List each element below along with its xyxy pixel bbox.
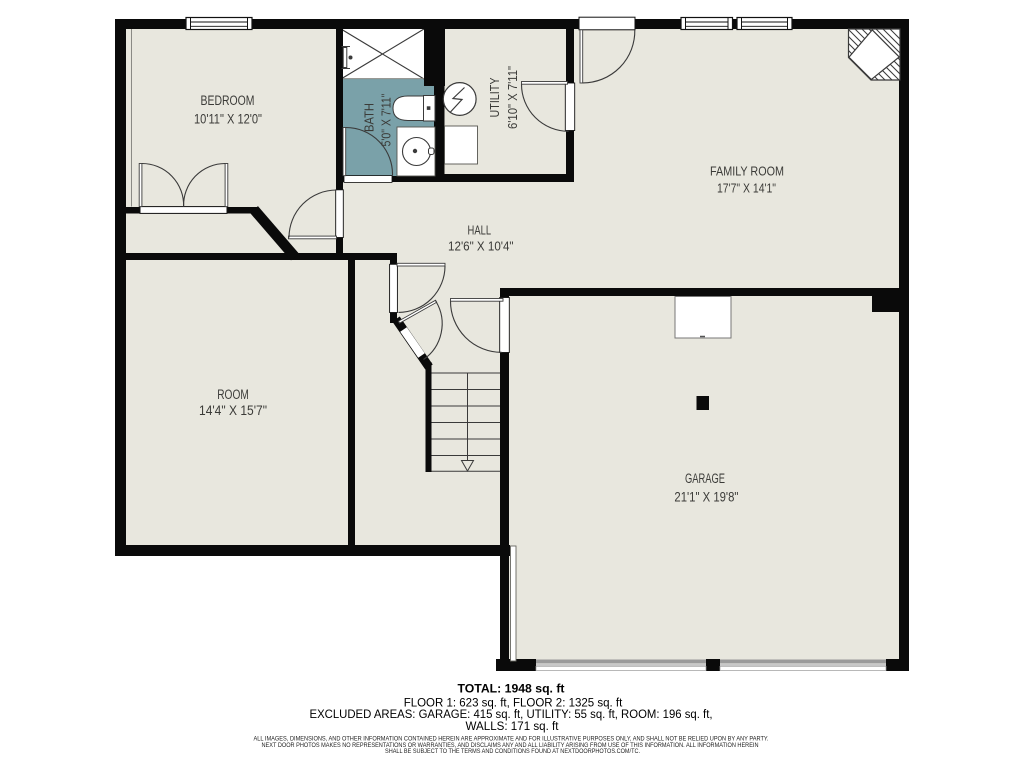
svg-text:HALL: HALL — [468, 223, 492, 238]
svg-text:17'7" X 14'1": 17'7" X 14'1" — [717, 181, 776, 196]
svg-text:TOTAL: 1948 sq. ft: TOTAL: 1948 sq. ft — [458, 681, 565, 695]
svg-text:14'4" X 15'7": 14'4" X 15'7" — [199, 403, 267, 418]
svg-text:BEDROOM: BEDROOM — [201, 93, 255, 108]
svg-text:5'0" X 7'11": 5'0" X 7'11" — [379, 93, 394, 146]
svg-text:12'6" X 10'4": 12'6" X 10'4" — [448, 239, 514, 254]
svg-text:FAMILY ROOM: FAMILY ROOM — [710, 164, 784, 179]
svg-text:BATH: BATH — [362, 103, 377, 132]
svg-text:10'11" X 12'0": 10'11" X 12'0" — [194, 112, 262, 127]
svg-text:SHALL BE SUBJECT TO THE TERMS: SHALL BE SUBJECT TO THE TERMS AND CONDIT… — [385, 749, 640, 755]
svg-text:WALLS: 171 sq. ft: WALLS: 171 sq. ft — [466, 719, 560, 733]
svg-text:ROOM: ROOM — [217, 387, 249, 402]
svg-text:GARAGE: GARAGE — [685, 471, 725, 486]
svg-text:21'1" X 19'8": 21'1" X 19'8" — [674, 490, 738, 505]
svg-text:6'10" X 7'11": 6'10" X 7'11" — [505, 66, 520, 129]
svg-text:ALL IMAGES, DIMENSIONS, AND OT: ALL IMAGES, DIMENSIONS, AND OTHER INFORM… — [254, 737, 769, 743]
svg-text:UTILITY: UTILITY — [487, 77, 502, 117]
